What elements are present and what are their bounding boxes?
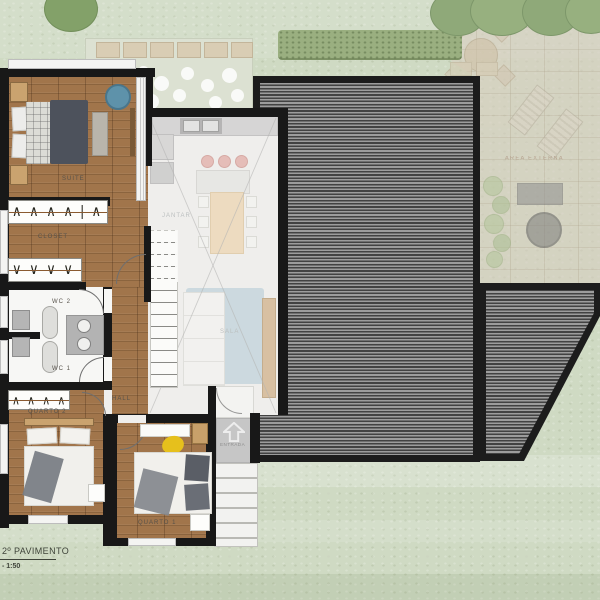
quarto1-pillow <box>184 483 210 511</box>
entrance-arrow-icon <box>223 422 245 442</box>
window <box>128 538 176 546</box>
sink <box>77 319 91 333</box>
entrada-box: ENTRADA <box>216 418 252 463</box>
wall <box>4 68 153 77</box>
wall <box>278 108 288 415</box>
window <box>0 340 8 374</box>
bush <box>493 234 511 252</box>
wall <box>103 414 117 546</box>
exterior-steps <box>214 463 258 547</box>
quarto1-shelf <box>192 423 208 444</box>
hall-floor <box>110 287 148 414</box>
window <box>0 296 8 328</box>
garden-paver <box>231 42 253 58</box>
garden-paver <box>150 42 174 58</box>
quarto2-rack: ∧ ∧ ∧ ∧ <box>8 390 70 410</box>
bush <box>484 214 504 234</box>
patio-paver <box>476 62 498 76</box>
fire-pit <box>526 212 562 248</box>
quarto1-desk <box>140 424 190 437</box>
entrada-label: ENTRADA <box>220 443 245 448</box>
garden-paver <box>177 42 201 58</box>
suite-bed-duvet <box>50 100 88 164</box>
garden-paver <box>96 42 120 58</box>
area-externa-label: AREA EXTERNA <box>505 156 564 162</box>
door-gap <box>118 415 146 423</box>
window <box>0 424 8 474</box>
wall <box>208 386 216 416</box>
hall-label: HALL <box>112 396 131 402</box>
garden-paver <box>123 42 147 58</box>
closet-rod <box>9 400 69 401</box>
closet-rack: ∨ ∨ ∨ ∨ ∨ <box>8 258 82 282</box>
suite-bench <box>92 112 108 156</box>
quarto2-label: QUARTO 2 <box>28 409 66 415</box>
shower <box>12 310 30 330</box>
window <box>8 59 136 69</box>
wall <box>250 413 260 463</box>
wall <box>0 282 86 290</box>
wc1-label: WC 1 <box>52 366 71 372</box>
staircase-dashed-overlay <box>150 230 178 282</box>
suite-plaid-blanket <box>26 102 50 164</box>
bush <box>486 251 503 268</box>
door-gap <box>104 357 112 381</box>
title-divider <box>0 559 56 560</box>
floor-plan-canvas: AREA EXTERNA <box>0 0 600 600</box>
closet-rod <box>9 270 81 271</box>
plan-scale: - 1:50 <box>0 563 69 570</box>
title-block: 2º PAVIMENTO - 1:50 <box>0 546 69 570</box>
door-gap <box>104 289 112 313</box>
window <box>0 210 8 274</box>
quarto1-label: QUARTO 1 <box>138 520 176 526</box>
quarto2-headboard <box>24 418 94 426</box>
window <box>136 77 146 201</box>
wall <box>0 382 112 390</box>
suite-nightstand <box>10 82 28 102</box>
suite-console <box>130 108 135 156</box>
quarto1-nightstand <box>190 514 210 531</box>
closet-rack: ∧ ∧ ∧ ∧ | ∧ ∧ ∧ <box>8 200 108 224</box>
suite-label: SUITE <box>62 176 85 182</box>
quarto2-nightstand <box>88 484 105 502</box>
sink <box>77 337 91 351</box>
quarto2-pillow <box>27 427 58 445</box>
wall <box>148 108 288 117</box>
roof-main-surface <box>260 83 473 455</box>
wc2-label: WC 2 <box>52 299 71 305</box>
suite-nightstand <box>10 165 28 185</box>
bush <box>483 176 503 196</box>
hedge <box>278 30 462 60</box>
sun-lounger <box>537 108 584 159</box>
plan-title: 2º PAVIMENTO <box>0 546 69 556</box>
quarto2-pillow <box>60 427 91 445</box>
closet-label: CLOSET <box>38 234 68 240</box>
window <box>28 515 68 524</box>
garden-paver <box>204 42 228 58</box>
shower <box>12 337 30 357</box>
wall <box>145 77 153 112</box>
sun-lounger <box>508 84 555 135</box>
patio-paver <box>450 62 472 76</box>
suite-armchair <box>105 84 131 110</box>
bathtub <box>42 306 58 339</box>
wall <box>133 68 155 77</box>
quarto1-pillow <box>184 454 210 482</box>
closet-rod <box>9 212 107 213</box>
bush <box>492 196 510 214</box>
patio-bench <box>517 183 563 205</box>
